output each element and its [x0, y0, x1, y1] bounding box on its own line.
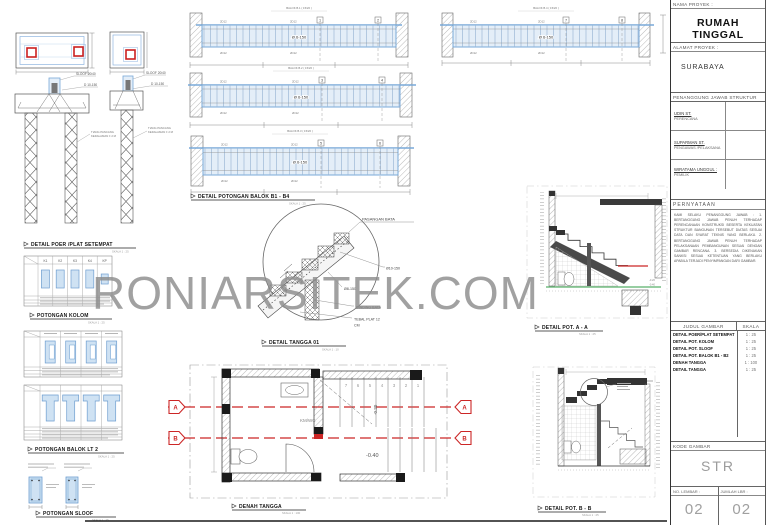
beam-b1-label: BALOK B.1 ( 15/20 ): [286, 6, 312, 10]
drawing-scale-1: 1 : 25: [737, 331, 765, 338]
person-1-name: UDIN ST.: [674, 111, 723, 116]
beam-b3: BALOK B.3 ( 15/20 ) Ø 6-150 2D12 2D12 2D…: [189, 129, 414, 195]
caption-text: DETAIL POTONGAN BALOK B1 - B4: [198, 194, 289, 200]
beam-b3-rebar-bm: 2D12: [291, 179, 298, 183]
beam-b3-rebar-bl: 2D12: [221, 179, 228, 183]
marker-letter: A: [462, 405, 467, 411]
drawing-canvas: SLOOF 20/40 D 10-150 SLOOF 20/40 D 10-15…: [0, 0, 670, 525]
beam-b1-rebar-tl: 2D12: [220, 20, 227, 24]
no-lembar-label: NO. LEMBAR :: [671, 487, 718, 496]
beam-b1-rebar-bm: 2D12: [290, 51, 297, 55]
person-row-1: UDIN ST. PERENCANA: [671, 102, 765, 131]
caption-text: DETAIL POER /PLAT SETEMPAT: [31, 242, 113, 248]
beam-b2-stirrup: Ø 6-150: [294, 95, 309, 100]
caption-detail-potongan-balok: DETAIL POTONGAN BALOK B1 - B4 SKALA 1 : …: [191, 194, 315, 206]
beam-b2-label: BALOK B.2 ( 15/20 ): [288, 66, 314, 70]
no-lembar-value: 02: [671, 496, 718, 518]
jumlah-lbr-value: 02: [719, 496, 766, 518]
beam-b2-rebar-bm: 2D12: [292, 111, 299, 115]
beam-b1-cut-mid: 1: [319, 19, 321, 23]
pasangan-bata-label: PASANGAN BATA: [362, 217, 395, 222]
person-row-2: SUPARMAN ST. PENGAWAS /PELAKSANA: [671, 131, 765, 160]
person-1-role: PERENCANA: [674, 117, 723, 121]
drawing-scale-5: 1 : 100: [737, 359, 765, 366]
aa-level-020: -0.20: [649, 278, 655, 282]
stair-num-1: 1: [417, 383, 420, 388]
caption-scale: SKALA 1 : 25: [579, 332, 596, 336]
beam-b4-cut-end: 8: [621, 19, 623, 23]
sheet-number-row: NO. LEMBAR : 02 JUMLAH LBR : 02: [671, 487, 765, 525]
penanggung-label: PENANGGUNG JAWAB STRUKTUR: [671, 93, 765, 102]
caption-scale: SKALA 1 : 100: [282, 511, 301, 515]
person-3-name: WIRATAMA UNGGUL :: [674, 167, 723, 172]
aa-level-040: -0.40: [649, 283, 655, 287]
caption-text: DETAIL POT. B - B: [545, 506, 592, 512]
beam-b1-cut-end: 2: [377, 19, 379, 23]
level-040-label: -0.40: [366, 453, 379, 459]
kolom-header-k1: K1: [43, 259, 47, 263]
caption-scale: SKALA 1 : 25: [98, 455, 115, 459]
judul-row-1: DETAIL POER/PLAT SETEMPAT 1 : 25: [671, 331, 765, 338]
person-3-signature: [726, 160, 765, 189]
nama-proyek-value: RUMAH TINGGAL: [671, 9, 765, 41]
drawing-scale-3: 1 : 25: [737, 345, 765, 352]
judul-row-3: DETAIL POT. SLOOF 1 : 25: [671, 345, 765, 352]
caption-potongan-balok-lt2: POTONGAN BALOK LT 2 SKALA 1 : 25: [28, 447, 124, 459]
section-a-a: -0.20 -0.40: [527, 186, 667, 318]
balok-lt2-table-b: [24, 385, 122, 440]
footing-section-left: TIANG PANCANG KEDALAMAN ± 2 M: [15, 78, 117, 223]
beam-b2-cut-end: 4: [381, 79, 383, 83]
caption-scale: SKALA 1 : 25: [289, 202, 306, 206]
judul-row-6: DETAIL TANGGA 1 : 25: [671, 366, 765, 373]
caption-text: DETAIL TANGGA 01: [269, 340, 319, 346]
beam-b3-cut-mid: 5: [320, 142, 322, 146]
marker-letter: B: [462, 436, 467, 442]
kolom-header-kp: KP: [102, 259, 106, 263]
caption-scale: SKALA 1 : 25: [88, 321, 105, 325]
judul-divider: [737, 331, 738, 437]
kolom-header-k4: K4: [88, 259, 92, 263]
beam-b2-cut-mid: 3: [321, 79, 323, 83]
drawing-title-2: DETAIL POT. KOLOM: [671, 338, 737, 345]
caption-text: POTONGAN BALOK LT 2: [35, 447, 98, 453]
caption-pot-bb: DETAIL POT. B - B SKALA 1 : 25: [538, 506, 606, 517]
jumlah-lbr-label: JUMLAH LBR :: [719, 487, 766, 496]
caption-detail-poer: DETAIL POER /PLAT SETEMPAT SKALA 1 : 25: [24, 242, 136, 254]
drawing-sheet: SLOOF 20/40 D 10-150 SLOOF 20/40 D 10-15…: [0, 0, 768, 525]
beam-b2-rebar-tm: 2D12: [292, 80, 299, 84]
drawing-title-4: DETAIL POT. BALOK B1 - B2: [671, 352, 737, 359]
sloof-label-2: SLOOF 20/40: [146, 71, 166, 75]
title-block: NAMA PROYEK : RUMAH TINGGAL ALAMAT PROYE…: [670, 0, 766, 525]
potongan-sloof-sections: [28, 464, 95, 510]
pernyataan-label: PERNYATAAN: [671, 200, 765, 210]
caption-scale: SKALA 1 : 25: [582, 513, 599, 517]
poer-plan-2: [110, 32, 147, 75]
alamat-value: SURABAYA: [671, 52, 765, 71]
footing-section-right: TIANG PANCANG KEDALAMAN ± 2 M: [110, 76, 174, 223]
beam-b2-rebar-bl: 2D12: [220, 111, 227, 115]
drawing-scale-2: 1 : 25: [737, 338, 765, 345]
beam-b4-rebar-tm: 2D12: [538, 20, 545, 24]
beam-b4-label: BALOK B.4 ( 15/20 ): [533, 6, 559, 10]
caption-scale: SKALA 1 : 10: [322, 348, 339, 352]
denah-tangga-plan: 7 6 5 4 3 2 1 KM/WC -0.20 -0.40 A B A: [168, 365, 471, 498]
kolom-header-k3: K3: [73, 259, 77, 263]
caption-text: POTONGAN SLOOF: [43, 511, 93, 517]
caption-pot-aa: DETAIL POT. A - A SKALA 1 : 25: [535, 325, 603, 336]
beam-b1-stirrup: Ø 6-150: [292, 35, 307, 40]
judul-row-4: DETAIL POT. BALOK B1 - B2 1 : 25: [671, 352, 765, 359]
beam-b4-cut-mid: 7: [565, 19, 567, 23]
section-marker-b-left: B: [169, 432, 185, 445]
stair-num-5: 5: [369, 383, 372, 388]
beam-b2: BALOK B.2 ( 15/20 ) Ø 6-150 2D12 2D12 2D…: [188, 66, 416, 128]
kmwc-label: KM/WC: [300, 418, 316, 423]
beam-b4-rebar-bl: 2D12: [470, 51, 477, 55]
tiang-label-2b: KEDALAMAN ± 2 M: [148, 130, 174, 134]
section-b-b: [533, 367, 660, 497]
section-marker-a-right: A: [455, 401, 471, 414]
judul-gambar-label: JUDUL GAMBAR: [671, 322, 737, 330]
caption-detail-tangga: DETAIL TANGGA 01 SKALA 1 : 10: [262, 340, 346, 352]
kode-gambar-value: STR: [671, 451, 765, 474]
drawing-scale-4: 1 : 25: [737, 352, 765, 359]
marker-letter: B: [173, 436, 178, 442]
person-1-signature: [726, 102, 765, 130]
d10-label-1: D 10-150: [84, 83, 97, 87]
caption-text: DENAH TANGGA: [239, 504, 282, 510]
beam-b3-rebar-tm: 2D12: [291, 143, 298, 147]
sloof-label-1: SLOOF 20/40: [76, 72, 96, 76]
drawing-title-1: DETAIL POER/PLAT SETEMPAT: [671, 331, 737, 338]
tebal-plat-label-2: CM: [354, 324, 360, 328]
beam-b4-rebar-bm: 2D12: [538, 51, 545, 55]
person-row-3: WIRATAMA UNGGUL : PEMILIK: [671, 160, 765, 189]
person-3-role: PEMILIK: [674, 173, 723, 177]
marker-letter: A: [173, 405, 178, 411]
stair-num-6: 6: [357, 383, 360, 388]
beam-b3-label: BALOK B.3 ( 15/20 ): [287, 129, 313, 133]
level-020-label: -0.20: [373, 404, 378, 415]
person-2-signature: [726, 131, 765, 159]
kode-gambar-label: KODE GAMBAR: [671, 442, 765, 451]
pernyataan-text: KAMI SELAKU PENANGGUNG JAWAB : 1. BERTAN…: [671, 210, 765, 267]
stair-num-2: 2: [405, 383, 408, 388]
alamat-label: ALAMAT PROYEK :: [671, 43, 765, 52]
sloof-leader-labels: SLOOF 20/40 D 10-150 SLOOF 20/40 D 10-15…: [60, 71, 168, 90]
beam-b4-rebar-tl: 2D12: [470, 20, 477, 24]
watermark: RONIARSITEK.COM: [92, 266, 539, 320]
judul-row-5: DENAH TANGGA 1 : 100: [671, 359, 765, 366]
d10-label-2: D 10-150: [151, 82, 164, 86]
beam-b4: BALOK B.4 ( 15/20 ) Ø 6-150 2D12 2D12 2D…: [440, 6, 666, 66]
section-marker-a-left: A: [169, 401, 185, 414]
stair-num-4: 4: [381, 383, 384, 388]
drawing-scale-6: 1 : 25: [737, 366, 765, 373]
drawing-title-3: DETAIL POT. SLOOF: [671, 345, 737, 352]
kolom-header-k2: K2: [58, 259, 62, 263]
beam-b3-rebar-tl: 2D12: [221, 143, 228, 147]
beam-b4-stirrup: Ø 6-150: [539, 35, 554, 40]
caption-scale: SKALA 1 : 25: [112, 250, 129, 254]
beam-b3-stirrup: Ø 6-150: [293, 160, 308, 165]
section-marker-b-right: B: [455, 432, 471, 445]
caption-denah-tangga: DENAH TANGGA SKALA 1 : 100: [232, 504, 306, 515]
tiang-label-1b: KEDALAMAN ± 2 M: [91, 134, 117, 138]
person-2-name: SUPARMAN ST.: [674, 140, 723, 145]
caption-text: DETAIL POT. A - A: [542, 325, 588, 331]
stair-num-7: 7: [345, 383, 348, 388]
stair-num-3: 3: [393, 383, 396, 388]
nama-proyek-label: NAMA PROYEK :: [671, 0, 765, 9]
beam-b3-cut-end: 6: [379, 142, 381, 146]
beam-b1-rebar-tm: 2D12: [290, 20, 297, 24]
beam-b1: BALOK B.1 ( 15/20 ) Ø 6-150 2D12 2D12 2D…: [190, 6, 408, 68]
drawing-title-6: DETAIL TANGGA: [671, 366, 737, 373]
skala-label: SKALA: [737, 322, 765, 330]
poer-plan-1: [16, 33, 95, 75]
drawing-title-5: DENAH TANGGA: [671, 359, 737, 366]
balok-lt2-table-a: [24, 331, 122, 377]
caption-text: POTONGAN KOLOM: [37, 313, 89, 319]
person-2-role: PENGAWAS /PELAKSANA: [674, 146, 723, 150]
beam-b2-rebar-tl: 2D12: [220, 80, 227, 84]
judul-gambar-table: JUDUL GAMBAR SKALA DETAIL POER/PLAT SETE…: [671, 322, 765, 442]
judul-row-2: DETAIL POT. KOLOM 1 : 25: [671, 338, 765, 345]
beam-b1-rebar-bl: 2D12: [220, 51, 227, 55]
penanggung-rows: UDIN ST. PERENCANA SUPARMAN ST. PENGAWAS…: [671, 102, 765, 200]
